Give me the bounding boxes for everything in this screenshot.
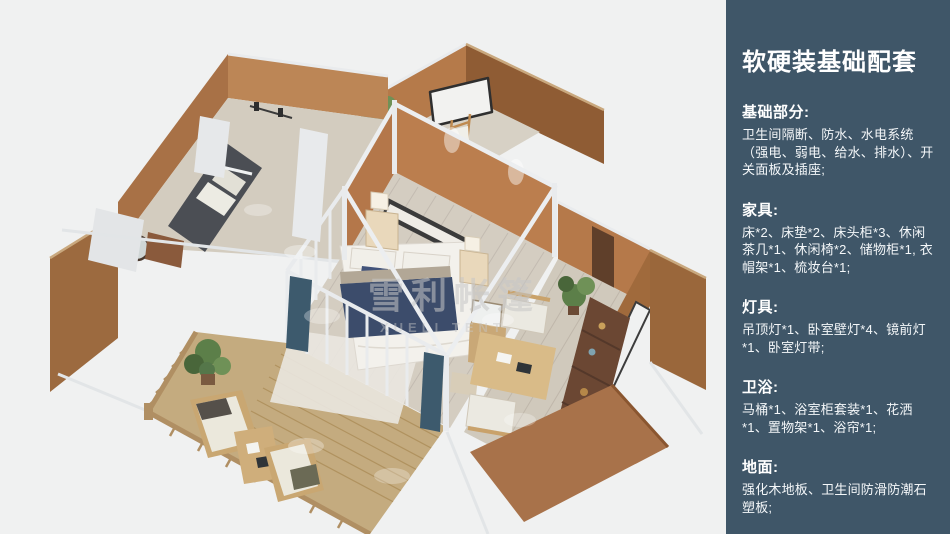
panel-title: 软硬装基础配套 (742, 42, 935, 77)
sheer-curtain (194, 116, 230, 178)
section-heading: 基础部分: (742, 101, 935, 122)
watermark-text: 雪利帐篷 (368, 275, 540, 316)
section-furniture: 家具: 床*2、床垫*2、床头柜*3、休闲茶几*1、休闲椅*2、储物柜*1, 衣… (742, 199, 935, 277)
section-heading: 家具: (742, 199, 935, 220)
section-body: 床*2、床垫*2、床头柜*3、休闲茶几*1、休闲椅*2、储物柜*1, 衣帽架*1… (742, 224, 935, 277)
section-heading: 地面: (742, 456, 935, 477)
section-heading: 卫浴: (742, 376, 935, 397)
section-flooring: 地面: 强化木地板、卫生间防滑防潮石塑板; (742, 456, 935, 516)
section-basics: 基础部分: 卫生间隔断、防水、水电系统（强电、弱电、给水、排水）、开关面板及插座… (742, 101, 935, 179)
teal-curtain (420, 352, 444, 432)
floorplan-render: 雪利帐篷 XUELI TENT (0, 0, 726, 534)
section-body: 马桶*1、浴室柜套装*1、花洒*1、置物架*1、浴帘*1; (742, 401, 935, 436)
section-heading: 灯具: (742, 296, 935, 317)
screenshot-root: 雪利帐篷 XUELI TENT 软硬装基础配套 基础部分: 卫生间隔断、防水、水… (0, 0, 950, 534)
right-wing-panel (650, 250, 706, 390)
section-body: 吊顶灯*1、卧室壁灯*4、镜前灯*1、卧室灯带; (742, 321, 935, 356)
section-bathroom: 卫浴: 马桶*1、浴室柜套装*1、花洒*1、置物架*1、浴帘*1; (742, 376, 935, 436)
section-lighting: 灯具: 吊顶灯*1、卧室壁灯*4、镜前灯*1、卧室灯带; (742, 296, 935, 356)
section-body: 卫生间隔断、防水、水电系统（强电、弱电、给水、排水）、开关面板及插座; (742, 126, 935, 179)
chair (466, 394, 516, 436)
section-body: 强化木地板、卫生间防滑防潮石塑板; (742, 481, 935, 516)
watermark-subtext: XUELI TENT (380, 320, 506, 335)
spec-panel: 软硬装基础配套 基础部分: 卫生间隔断、防水、水电系统（强电、弱电、给水、排水）… (726, 0, 950, 534)
